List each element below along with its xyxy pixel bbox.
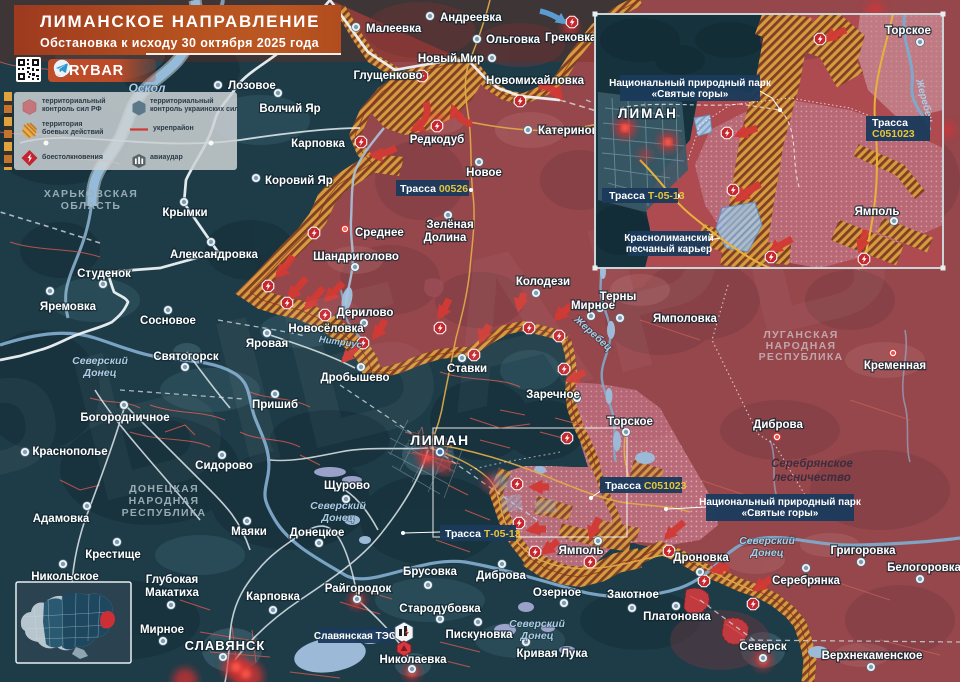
svg-text:Серебрянка: Серебрянка — [772, 575, 840, 587]
svg-text:Грековка: Грековка — [545, 32, 597, 44]
svg-text:Волчий Яр: Волчий Яр — [259, 103, 320, 115]
svg-text:С051023: С051023 — [872, 128, 915, 140]
svg-text:Макатиха: Макатиха — [145, 587, 199, 599]
svg-text:Дроновка: Дроновка — [673, 552, 729, 564]
svg-text:Диброва: Диброва — [753, 419, 803, 431]
svg-text:Кременная: Кременная — [864, 360, 926, 372]
svg-text:Трасса Т-05-13: Трасса Т-05-13 — [445, 528, 521, 540]
svg-text:Краснолиманский: Краснолиманский — [624, 233, 713, 244]
svg-text:Северский: Северский — [310, 500, 366, 512]
svg-text:Кривая Лука: Кривая Лука — [517, 648, 589, 660]
svg-text:Андреевка: Андреевка — [440, 12, 502, 24]
svg-text:Платоновка: Платоновка — [643, 611, 711, 623]
svg-text:Коровий Яр: Коровий Яр — [265, 175, 333, 187]
svg-text:«Святые горы»: «Святые горы» — [652, 89, 729, 100]
svg-text:Мирное: Мирное — [140, 624, 184, 636]
svg-text:Трасса Т-05-13: Трасса Т-05-13 — [609, 190, 685, 202]
svg-text:Малеевка: Малеевка — [366, 23, 422, 35]
svg-text:Трасса С051023: Трасса С051023 — [605, 480, 687, 492]
svg-text:Северский: Северский — [739, 535, 795, 547]
svg-text:Закотное: Закотное — [607, 589, 659, 601]
svg-text:Новый Мир: Новый Мир — [418, 53, 484, 65]
svg-text:Озерное: Озерное — [533, 587, 581, 599]
svg-text:Донец: Донец — [750, 547, 784, 559]
svg-text:Карповка: Карповка — [291, 138, 345, 150]
svg-text:Донецкое: Донецкое — [290, 527, 345, 539]
svg-text:Верхнекаменское: Верхнекаменское — [822, 650, 923, 662]
svg-text:Серебрянское: Серебрянское — [771, 458, 853, 470]
svg-text:Редкодуб: Редкодуб — [410, 134, 465, 146]
svg-text:Ольговка: Ольговка — [486, 34, 541, 46]
svg-text:Крестище: Крестище — [85, 549, 140, 561]
svg-text:Трасса 00526: Трасса 00526 — [400, 183, 468, 195]
svg-text:Николаевка: Николаевка — [379, 654, 447, 666]
svg-text:Крымки: Крымки — [162, 207, 207, 219]
svg-text:Ямполь: Ямполь — [559, 545, 604, 557]
svg-text:Национальный природный парк: Национальный природный парк — [699, 497, 862, 508]
svg-text:Национальный природный парк: Национальный природный парк — [609, 78, 772, 89]
svg-text:Северский: Северский — [509, 618, 565, 630]
svg-text:Стародубовка: Стародубовка — [399, 603, 481, 615]
svg-text:ЛИМАН: ЛИМАН — [618, 106, 678, 121]
svg-text:Райгородок: Райгородок — [325, 583, 392, 595]
svg-text:«Святые горы»: «Святые горы» — [742, 508, 819, 519]
svg-text:Донец: Донец — [520, 630, 554, 642]
svg-text:Новомихайловка: Новомихайловка — [486, 75, 585, 87]
svg-text:Ямполь: Ямполь — [855, 206, 900, 218]
svg-text:Пискуновка: Пискуновка — [445, 629, 513, 641]
svg-text:Никольское: Никольское — [31, 571, 99, 583]
svg-text:Диброва: Диброва — [476, 570, 526, 582]
svg-text:Григоровка: Григоровка — [830, 545, 896, 557]
svg-text:лесничество: лесничество — [772, 472, 850, 484]
svg-text:Донец: Донец — [321, 512, 355, 524]
svg-text:ХАРЬКОВСКАЯ: ХАРЬКОВСКАЯ — [44, 188, 138, 200]
svg-text:СЛАВЯНСК: СЛАВЯНСК — [185, 638, 266, 653]
svg-text:Белогоровка: Белогоровка — [887, 562, 960, 574]
svg-text:песчаный карьер: песчаный карьер — [626, 244, 712, 255]
svg-text:Лозовое: Лозовое — [228, 80, 276, 92]
svg-text:Глущенково: Глущенково — [353, 70, 422, 82]
svg-text:Студенок: Студенок — [77, 268, 131, 280]
svg-text:Торское: Торское — [885, 25, 931, 37]
svg-text:ОБЛАСТЬ: ОБЛАСТЬ — [61, 200, 122, 212]
svg-text:Карповка: Карповка — [246, 591, 300, 603]
svg-text:Северск: Северск — [739, 641, 786, 653]
svg-text:Брусовка: Брусовка — [403, 566, 457, 578]
svg-text:Славянская ТЭС: Славянская ТЭС — [314, 631, 396, 642]
svg-text:Александровка: Александровка — [170, 249, 259, 261]
svg-text:Глубокая: Глубокая — [146, 574, 199, 586]
svg-text:Новое: Новое — [466, 167, 502, 179]
svg-text:Маяки: Маяки — [231, 526, 267, 538]
